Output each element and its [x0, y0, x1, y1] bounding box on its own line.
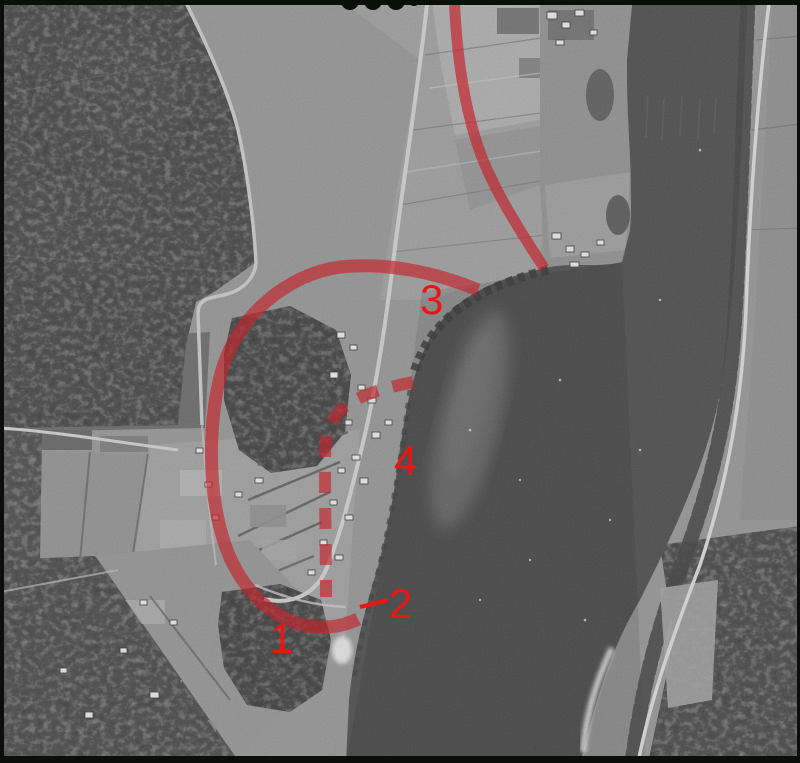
marker-3-label: 3 — [420, 276, 443, 323]
annotated-aerial-photo: 1 2 3 4 — [0, 0, 800, 763]
marker-1-label: 1 — [270, 615, 293, 662]
marker-4-label: 4 — [394, 437, 417, 484]
marker-2-label: 2 — [389, 580, 412, 627]
